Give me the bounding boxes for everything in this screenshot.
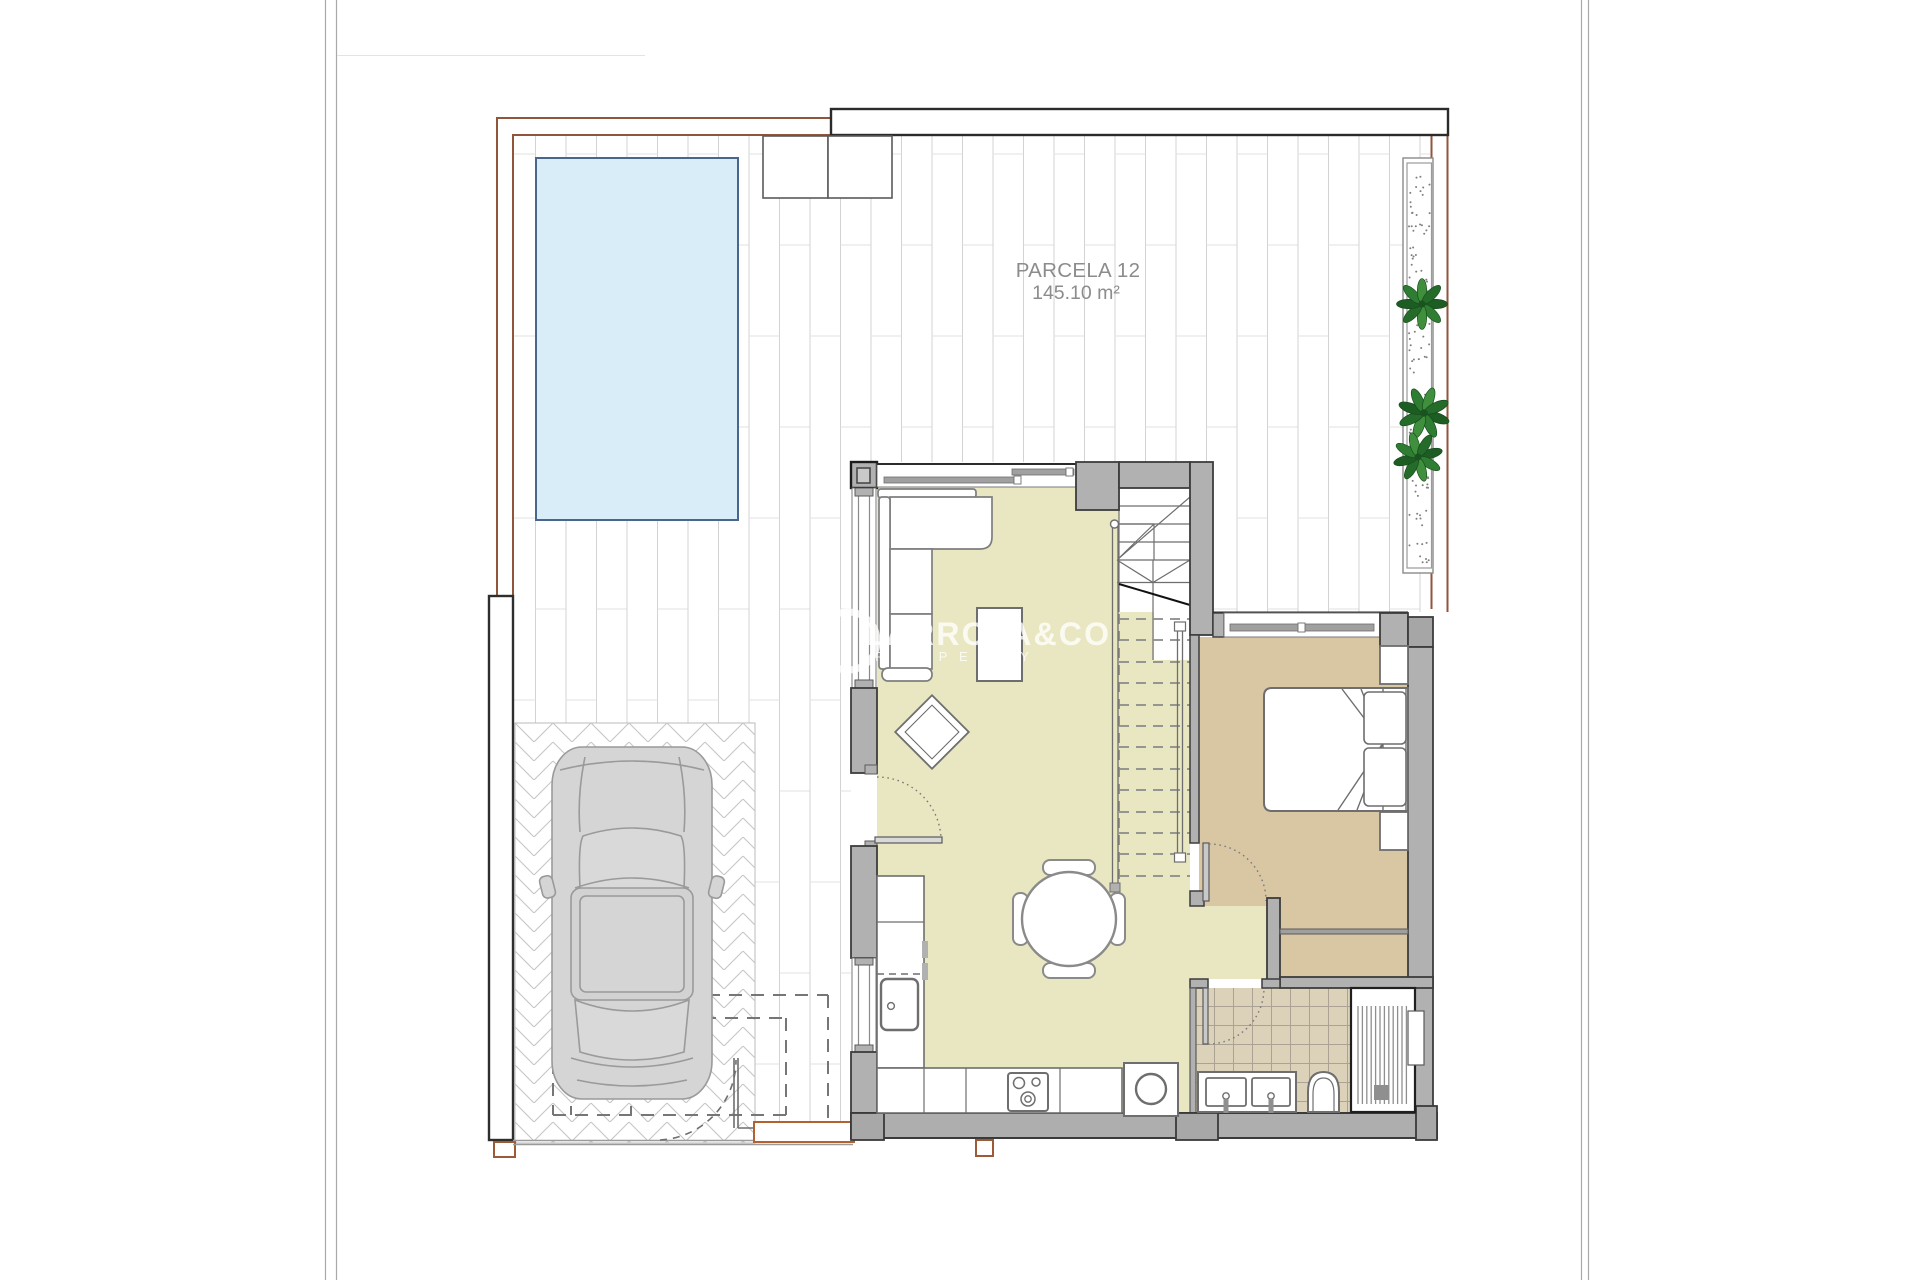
svg-text:PROPERTY: PROPERTY <box>875 649 1041 664</box>
svg-text:145.10 m²: 145.10 m² <box>1032 282 1120 304</box>
svg-text:LARROTA&CO: LARROTA&CO <box>864 616 1111 652</box>
svg-text:PARCELA 12: PARCELA 12 <box>1016 259 1141 282</box>
